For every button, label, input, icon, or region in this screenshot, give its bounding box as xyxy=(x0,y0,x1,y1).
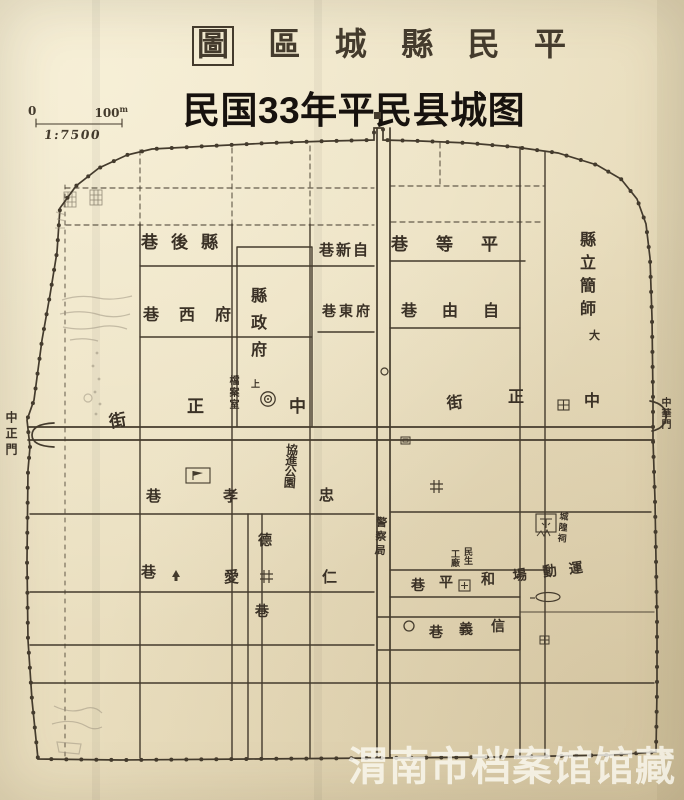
map-label: 檔案室 xyxy=(227,375,237,411)
map-label: 中華門 xyxy=(659,397,669,430)
historical-city-map: 圖區城縣民平 民国33年平民县城图 0 100m 1:7500 xyxy=(0,0,684,800)
map-label: 和 xyxy=(481,573,495,587)
map-label: 巷東府 xyxy=(322,305,373,319)
map-label: 上 xyxy=(251,381,260,390)
map-label: 中 xyxy=(289,399,306,416)
map-label: 巷後縣 xyxy=(141,235,231,252)
map-label: 德 xyxy=(258,534,272,548)
map-label: 信 xyxy=(491,620,505,634)
map-label: 巷 xyxy=(255,605,269,619)
map-label: 協進公園 xyxy=(283,443,298,488)
map-label: 街 xyxy=(446,394,464,412)
map-labels: 巷後縣巷新自巷等平縣立簡師大巷西府縣政府巷東府巷由自街正檔案室上中街正中中正門中… xyxy=(0,0,684,800)
map-label: 縣政府 xyxy=(249,287,265,368)
map-label: 巷 xyxy=(429,626,443,640)
map-label: 動 xyxy=(542,564,558,580)
map-label: 忠 xyxy=(319,488,334,503)
map-label: 義 xyxy=(459,623,473,637)
map-label: 街 xyxy=(108,412,128,432)
map-label: 巷西府 xyxy=(143,307,251,323)
map-label: 巷 xyxy=(411,579,425,593)
map-label: 大 xyxy=(589,330,600,341)
map-label: 巷等平 xyxy=(391,237,526,254)
map-label: 巷 xyxy=(146,489,161,504)
map-label: 中正門 xyxy=(5,411,17,459)
map-label: 巷由自 xyxy=(401,303,524,319)
map-label: 仁 xyxy=(322,570,337,585)
map-label: 正 xyxy=(508,389,524,405)
map-label: 正 xyxy=(187,399,204,416)
map-label: 運 xyxy=(568,561,584,577)
map-label: 工廠 xyxy=(449,549,458,567)
map-label: 縣立簡師 xyxy=(578,231,594,323)
map-label: 巷 xyxy=(141,565,156,580)
map-label: 民生 xyxy=(462,547,471,565)
map-label: 警察局 xyxy=(374,516,387,559)
map-label: 愛 xyxy=(224,570,239,585)
archive-watermark: 渭南市档案馆馆藏 xyxy=(348,734,676,792)
map-label: 中 xyxy=(584,393,600,409)
map-label: 城隍祠 xyxy=(555,511,567,545)
map-label: 場 xyxy=(512,568,528,584)
map-label: 平 xyxy=(439,576,453,590)
map-label: 巷新自 xyxy=(319,243,370,258)
map-label: 孝 xyxy=(223,489,238,504)
